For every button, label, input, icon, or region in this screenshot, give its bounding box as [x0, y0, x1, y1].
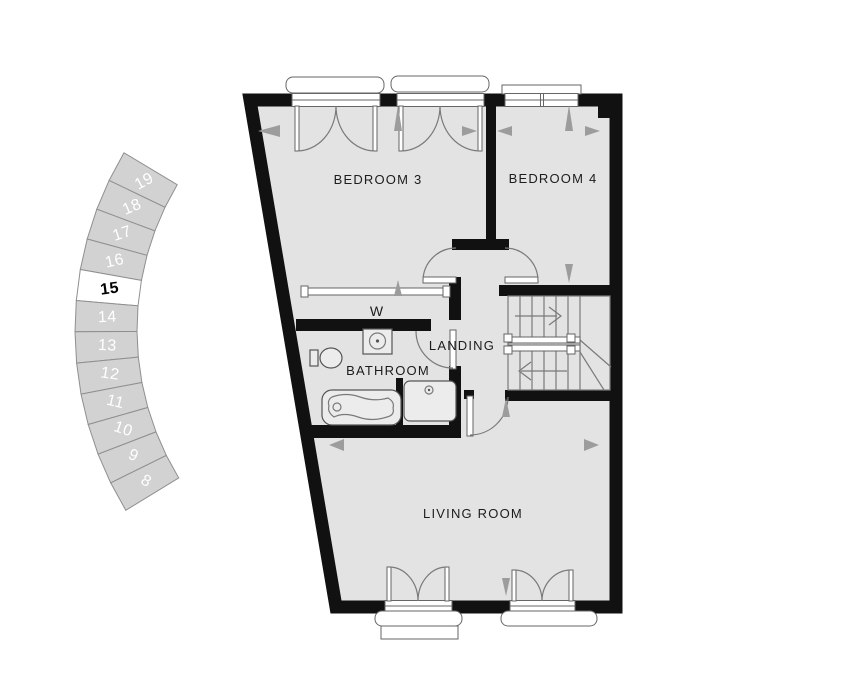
juliet-balcony-icon — [391, 76, 489, 92]
toilet-icon — [310, 348, 342, 368]
bedroom4-window — [502, 85, 581, 107]
plot-label-15[interactable]: 15 — [99, 279, 120, 298]
juliet-balcony-icon — [286, 77, 384, 93]
sink-icon — [363, 329, 392, 354]
bathroom-label: BATHROOM — [346, 363, 430, 378]
floorplan-page: 1918171615141312111098 — [0, 0, 857, 689]
bedroom4-door — [505, 277, 538, 283]
plot-label-13[interactable]: 13 — [98, 337, 118, 355]
bedroom3-door — [423, 277, 456, 283]
landing-label: LANDING — [429, 338, 495, 353]
living-room-label: LIVING ROOM — [423, 506, 523, 521]
shower-tray-icon — [404, 381, 456, 421]
wardrobe-label: W — [370, 303, 384, 319]
plot-label-12[interactable]: 12 — [100, 364, 121, 383]
juliet-balcony-icon — [501, 611, 597, 626]
plot-selector: 1918171615141312111098 — [75, 153, 179, 511]
wardrobe-rail — [301, 286, 450, 297]
bathtub-icon — [322, 390, 401, 425]
living-room-door — [467, 396, 473, 436]
plot-label-14[interactable]: 14 — [98, 309, 117, 327]
juliet-balcony-icon — [375, 611, 462, 626]
floor-plan: BEDROOM 3 BEDROOM 4 LANDING BATHROOM W L… — [250, 76, 616, 639]
bedroom4-label: BEDROOM 4 — [509, 171, 598, 186]
bedroom3-label: BEDROOM 3 — [334, 172, 423, 187]
